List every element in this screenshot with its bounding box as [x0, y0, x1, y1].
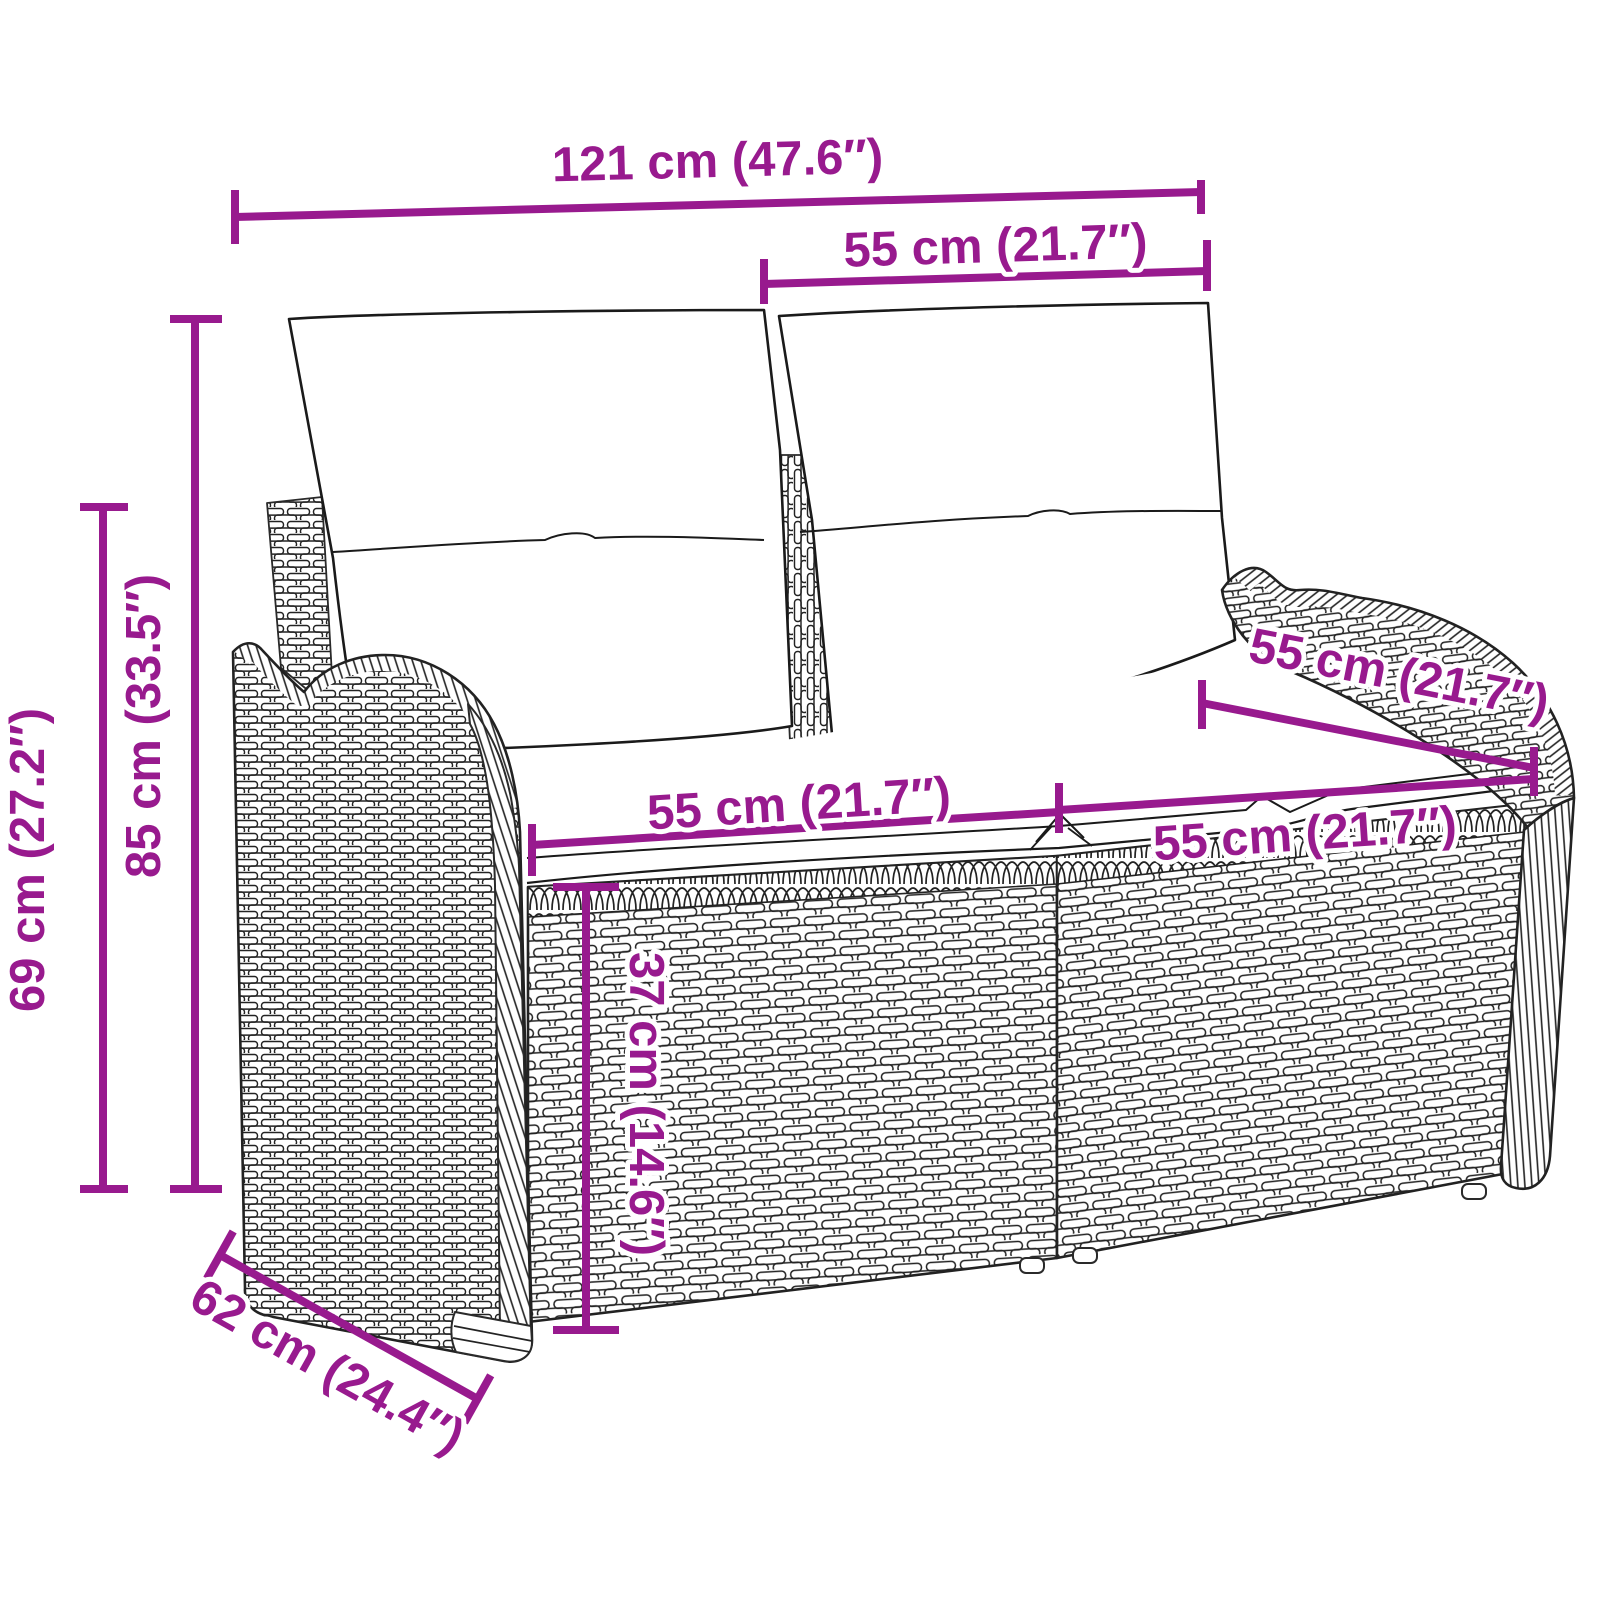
svg-text:37 cm (14.6″): 37 cm (14.6″) [619, 952, 673, 1256]
svg-text:121 cm (47.6″): 121 cm (47.6″) [551, 130, 884, 193]
svg-text:69 cm (27.2″): 69 cm (27.2″) [1, 708, 55, 1012]
svg-text:85 cm (33.5″): 85 cm (33.5″) [117, 574, 171, 878]
svg-text:55 cm (21.7″): 55 cm (21.7″) [843, 214, 1149, 278]
